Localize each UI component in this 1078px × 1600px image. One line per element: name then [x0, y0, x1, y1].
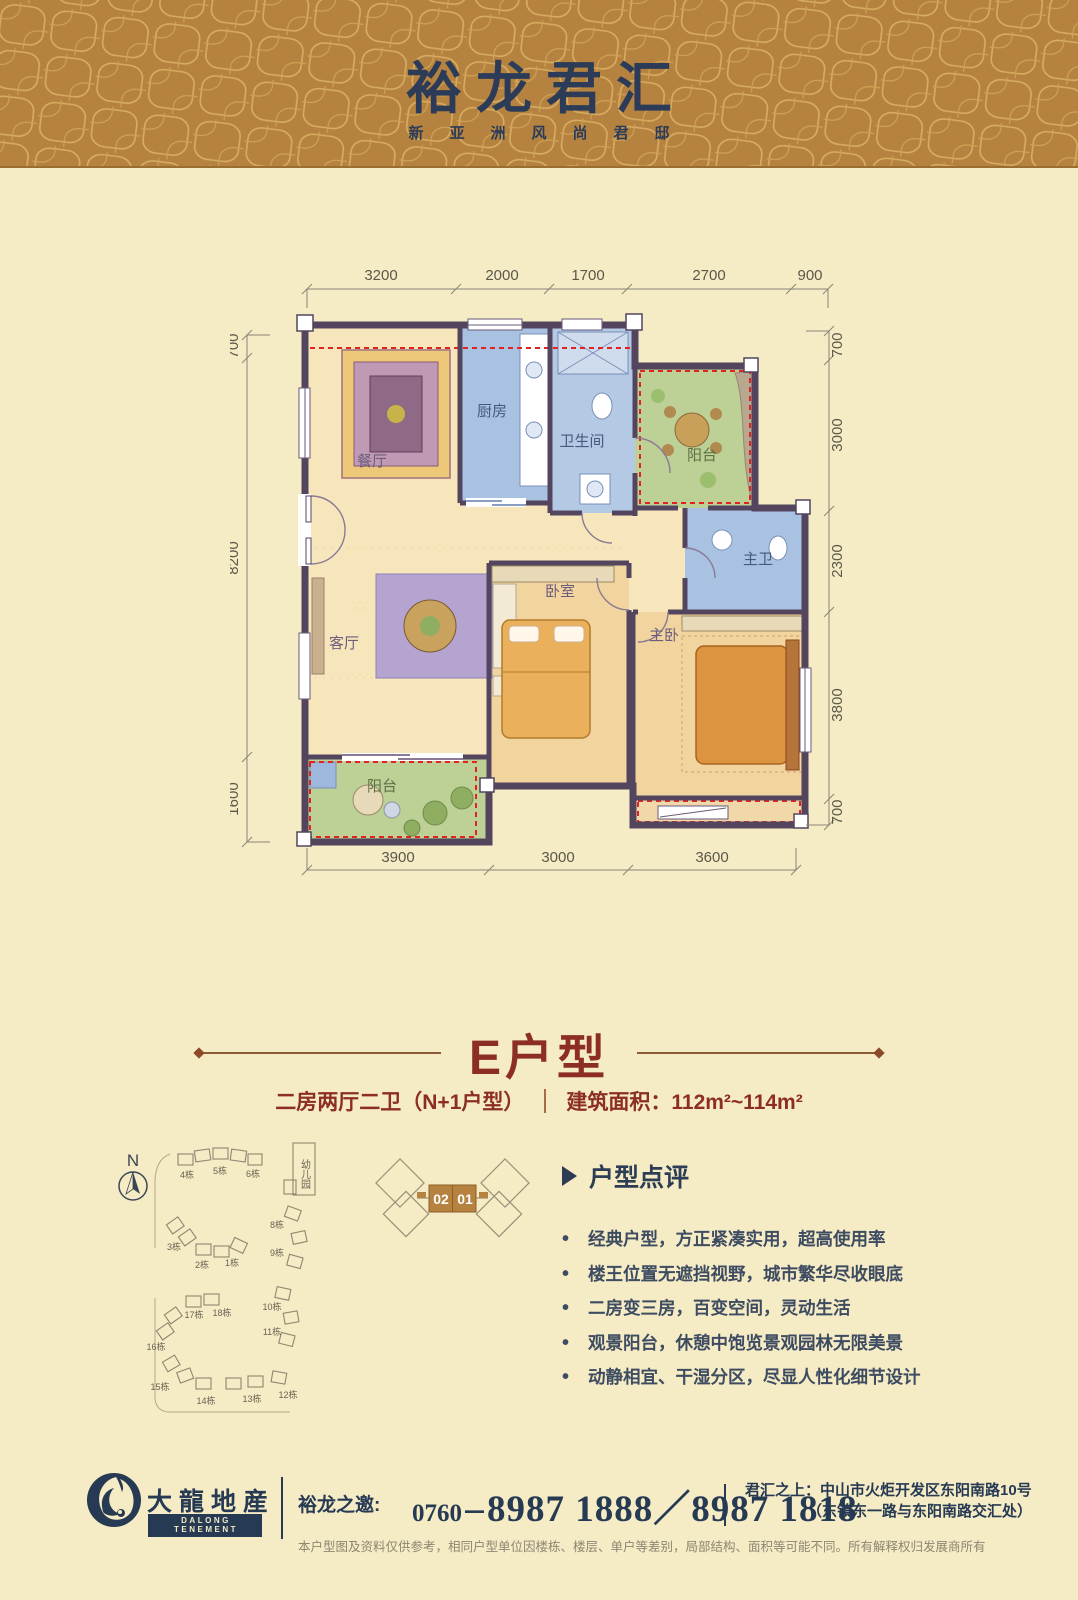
room-label-balcony-bottom: 阳台 — [367, 778, 397, 795]
poster-page: 裕龙君汇 新亚洲风尚君邸 — [0, 0, 1078, 1600]
building-label: 3栋 — [167, 1241, 181, 1252]
dim-bottom-2: 3000 — [541, 849, 574, 866]
building-label: 9栋 — [270, 1247, 284, 1258]
building-label: 13栋 — [242, 1393, 261, 1404]
dim-right-1: 700 — [829, 332, 846, 357]
window-icon — [417, 1192, 426, 1198]
dim-top-2: 2000 — [485, 267, 518, 284]
building-label: 11栋 — [263, 1326, 281, 1337]
unit-02-label: 02 — [433, 1191, 449, 1207]
building-label: 14栋 — [196, 1395, 215, 1406]
footer-divider-2 — [724, 1484, 726, 1526]
dim-right-3: 2300 — [829, 544, 846, 577]
bullet-icon: • — [562, 1326, 588, 1361]
header-banner: 裕龙君汇 新亚洲风尚君邸 — [0, 0, 1078, 168]
review-item: • 动静相宜、干湿分区，尽显人性化细节设计 — [562, 1360, 1012, 1395]
footer-disclaimer: 本户型图及资料仅供参考，相同户型单位因楼栋、楼层、单户等差别，局部结构、面积等可… — [298, 1536, 1018, 1555]
building-label: 1栋 — [225, 1257, 239, 1268]
footer-logo-cn: 大龍地産 — [147, 1482, 275, 1518]
type-subtitle-row: 二房两厅二卫（N+1户型） 建筑面积：112m²~114m² — [0, 1086, 1078, 1116]
type-title-row: E户型 — [0, 1018, 1078, 1088]
dim-left-3: 1600 — [230, 782, 242, 815]
building-label: 5栋 — [213, 1165, 227, 1176]
review-item: • 二房变三房，百变空间，灵动生活 — [562, 1291, 1012, 1326]
building-label: 15栋 — [150, 1381, 169, 1392]
building-labels: 4栋 5栋 6栋 3栋 2栋 1栋 8栋 9栋 17栋 18栋 16栋 10栋 … — [146, 1165, 297, 1406]
dalong-logo-icon — [86, 1472, 142, 1528]
review-item: • 经典户型，方正紧凑实用，超高使用率 — [562, 1222, 1012, 1257]
dim-left-2: 8200 — [230, 541, 242, 574]
dim-bottom-1: 3900 — [381, 849, 414, 866]
type-subtitle-left: 二房两厅二卫（N+1户型） — [275, 1086, 524, 1116]
dim-top-3: 1700 — [571, 267, 604, 284]
address-line-1: 君汇之上：中山市火炬开发区东阳南路10号 — [745, 1480, 1032, 1501]
review-section: 户型点评 • 经典户型，方正紧凑实用，超高使用率 • 楼王位置无遮挡视野，城市繁… — [562, 1158, 1012, 1395]
dim-top-5: 900 — [797, 267, 822, 284]
footer-address: 君汇之上：中山市火炬开发区东阳南路10号 （东镇东一路与东阳南路交汇处） — [745, 1480, 1032, 1522]
dim-right-5: 700 — [829, 799, 846, 824]
siteplan: N 幼儿园 4栋 5栋 6栋 — [100, 1128, 350, 1428]
building-label: 4栋 — [180, 1169, 194, 1180]
type-title: E户型 — [469, 1018, 609, 1088]
room-label-living: 客厅 — [329, 635, 359, 652]
dim-left-1: 700 — [230, 333, 242, 358]
dim-right-4: 3800 — [829, 688, 846, 721]
rule-right — [637, 1052, 875, 1054]
site-road — [155, 1154, 290, 1412]
triangle-marker-icon — [562, 1166, 577, 1186]
building-label: 16栋 — [146, 1341, 165, 1352]
compass-north-label: N — [127, 1151, 139, 1170]
review-item-text: 楼王位置无遮挡视野，城市繁华尽收眼底 — [588, 1257, 903, 1292]
review-item-text: 观景阳台，休憩中饱览景观园林无限美景 — [588, 1326, 903, 1361]
subtitle-divider — [544, 1089, 546, 1113]
room-label-balcony-top: 阳台 — [687, 447, 717, 464]
bullet-icon: • — [562, 1291, 588, 1326]
project-title: 裕龙君汇 — [0, 44, 1078, 125]
footer-logo-en: DALONG TENEMENT — [148, 1514, 262, 1537]
building-label: 6栋 — [246, 1168, 260, 1179]
unit-01-label: 01 — [457, 1191, 473, 1207]
address-line-2: （东镇东一路与东阳南路交汇处） — [745, 1501, 1032, 1522]
review-item-text: 经典户型，方正紧凑实用，超高使用率 — [588, 1222, 886, 1257]
kindergarten-label: 幼儿园 — [299, 1158, 311, 1190]
review-item: • 楼王位置无遮挡视野，城市繁华尽收眼底 — [562, 1257, 1012, 1292]
project-subtitle: 新亚洲风尚君邸 — [0, 122, 1078, 143]
bullet-icon: • — [562, 1257, 588, 1292]
footer-divider-1 — [281, 1477, 283, 1539]
rule-left — [203, 1052, 441, 1054]
dim-top-4: 2700 — [692, 267, 725, 284]
dim-top-1: 3200 — [364, 267, 397, 284]
diamond-left-icon — [193, 1047, 204, 1058]
dim-bottom-3: 3600 — [695, 849, 728, 866]
review-item-text: 二房变三房，百变空间，灵动生活 — [588, 1291, 851, 1326]
diamond-right-icon — [873, 1047, 884, 1058]
room-label-master-bath: 主卫 — [743, 551, 773, 568]
type-subtitle-right: 建筑面积：112m²~114m² — [566, 1086, 802, 1116]
review-item: • 观景阳台，休憩中饱览景观园林无限美景 — [562, 1326, 1012, 1361]
room-label-kitchen: 厨房 — [477, 403, 507, 420]
building-label: 17栋 — [184, 1309, 203, 1320]
dim-right-2: 3000 — [829, 418, 846, 451]
review-title-row: 户型点评 — [562, 1158, 1012, 1194]
floorplan: 餐厅 厨房 卫生间 阳台 主卫 客厅 卧室 主卧 阳台 — [230, 248, 870, 896]
building-label: 2栋 — [195, 1259, 209, 1270]
review-title: 户型点评 — [589, 1158, 689, 1194]
room-label-dining: 餐厅 — [357, 453, 387, 470]
building-label: 18栋 — [212, 1307, 231, 1318]
review-items: • 经典户型，方正紧凑实用，超高使用率 • 楼王位置无遮挡视野，城市繁华尽收眼底… — [562, 1222, 1012, 1395]
building-label: 10栋 — [262, 1301, 281, 1312]
room-label-bedroom: 卧室 — [545, 583, 575, 600]
bullet-icon: • — [562, 1360, 588, 1395]
address-text: 中山市火炬开发区东阳南路10号 — [820, 1482, 1032, 1499]
bullet-icon: • — [562, 1222, 588, 1257]
room-label-master-bedroom: 主卧 — [649, 627, 679, 644]
phone-prefix: 0760－ — [412, 1500, 487, 1527]
compass: N — [119, 1151, 147, 1200]
building-label: 8栋 — [270, 1219, 284, 1230]
unit-location-diagram: 02 01 — [355, 1128, 550, 1253]
room-label-bath: 卫生间 — [559, 433, 604, 450]
phone-label: 裕龙之邀: — [298, 1490, 380, 1517]
review-item-text: 动静相宜、干湿分区，尽显人性化细节设计 — [588, 1360, 921, 1395]
address-label: 君汇之上： — [745, 1482, 820, 1499]
building-label: 12栋 — [278, 1389, 297, 1400]
window-icon — [479, 1192, 488, 1198]
